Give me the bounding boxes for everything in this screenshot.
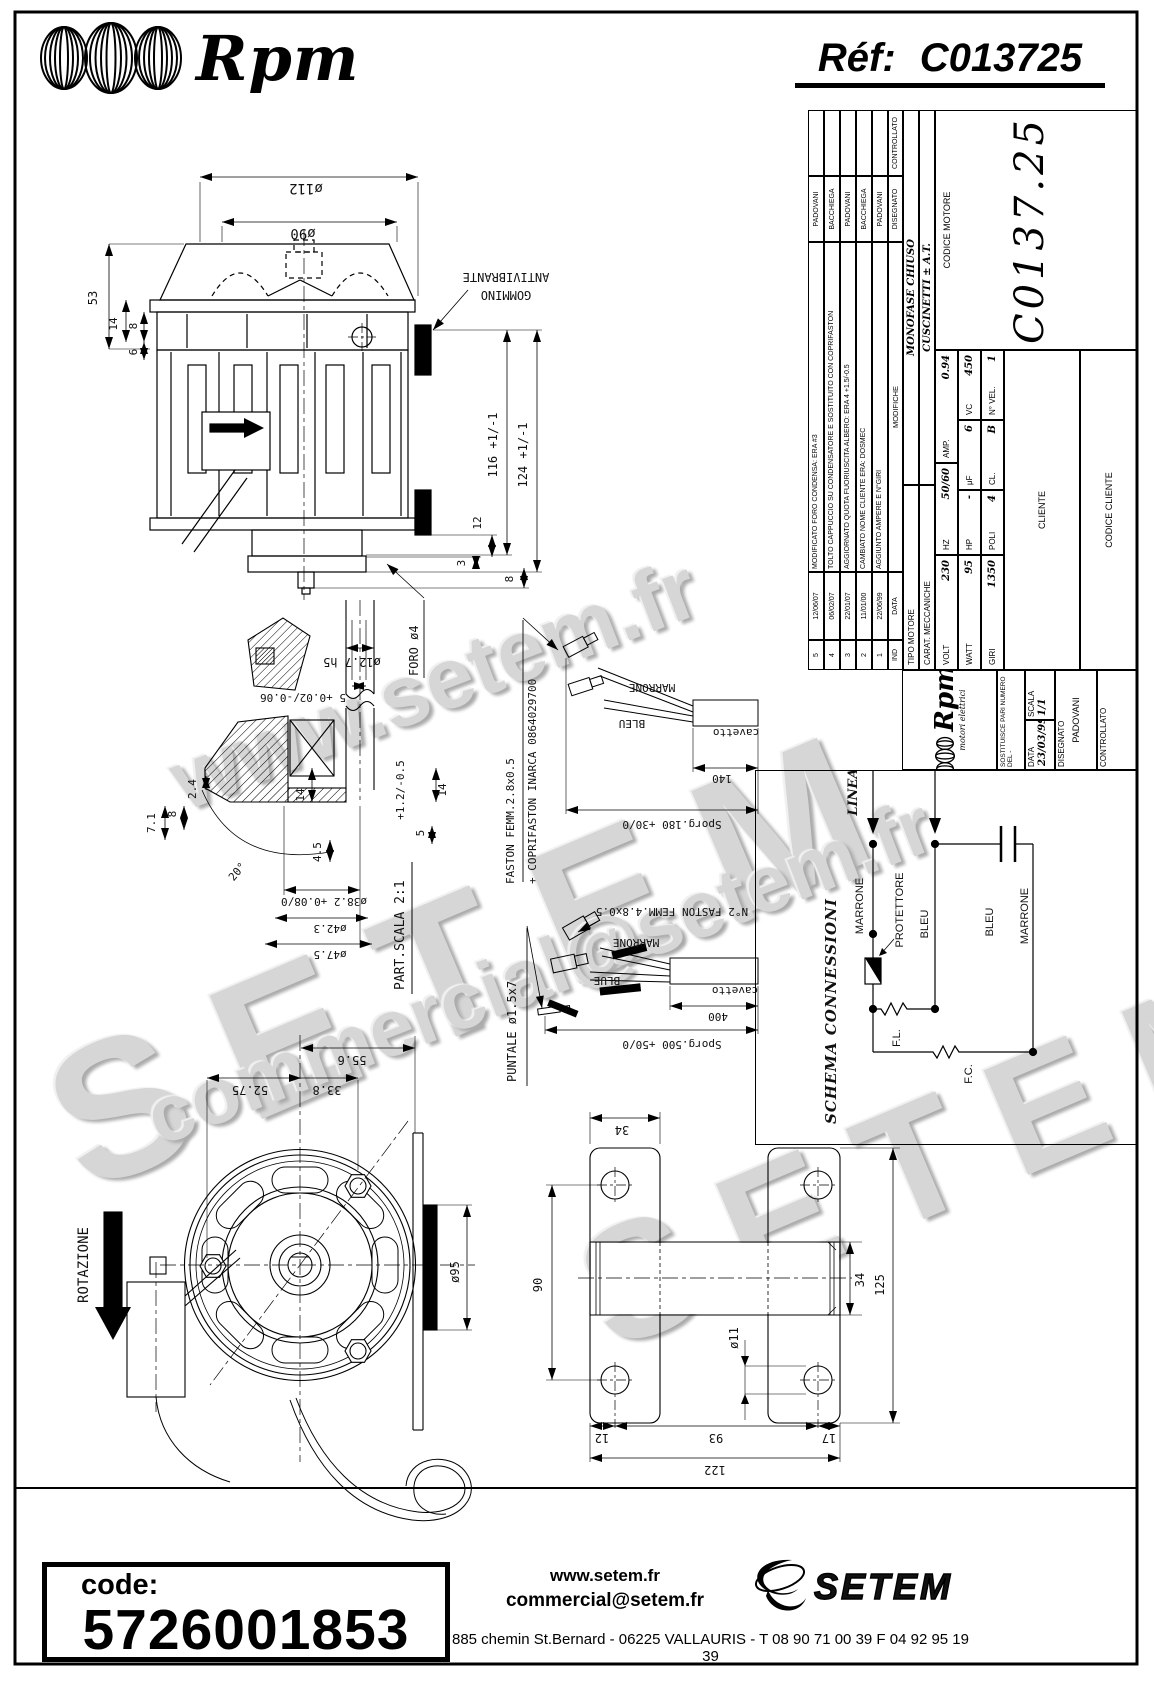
svg-text:F.L.: F.L. (891, 1029, 903, 1047)
wiring-schematic: SCHEMA CONNESSIONI LINEA (756, 771, 1136, 1144)
rev-row4-date: 06/02/07 (824, 572, 840, 640)
rpm-wordmark: Rpm (196, 22, 359, 95)
rev-row5-ind: 5 (808, 640, 824, 670)
rev-row4-check (824, 110, 840, 176)
volt-cell: VOLT230 (935, 555, 958, 670)
rev-row1-check (872, 110, 888, 176)
svg-text:4.5: 4.5 (311, 842, 324, 862)
svg-text:GOMMINO: GOMMINO (481, 288, 532, 302)
svg-text:cavetto: cavetto (713, 726, 759, 739)
svg-text:cavetto: cavetto (712, 984, 758, 997)
svg-text:Sporg.500 +50/0: Sporg.500 +50/0 (622, 1038, 721, 1051)
svg-text:7.1: 7.1 (145, 813, 158, 833)
rev-header-author: DISEGNATO (888, 176, 903, 242)
svg-text:+ COPRIFASTON INARCA 086402970: + COPRIFASTON INARCA 0864029700 (526, 679, 539, 884)
tb-data-cell: DATA23/03/99 (1025, 720, 1055, 770)
poli-cell: POLI4 (981, 490, 1004, 555)
schema-title: SCHEMA CONNESSIONI (822, 898, 840, 1124)
svg-text:116 +1/-1: 116 +1/-1 (486, 412, 500, 477)
setem-swoosh-icon (753, 1560, 807, 1611)
uf-cell: μF6 (958, 420, 981, 490)
svg-text:2.4: 2.4 (186, 779, 199, 799)
rev-row5-check (808, 110, 824, 176)
codice-cliente-cell: CODICE CLIENTE (1080, 350, 1137, 670)
svg-text:12: 12 (595, 1431, 609, 1445)
svg-text:14: 14 (436, 783, 449, 797)
footer-address: 885 chemin St.Bernard - 06225 VALLAURIS … (448, 1631, 973, 1665)
ref-value: C013725 (920, 36, 1082, 80)
svg-text:ø95: ø95 (448, 1261, 462, 1283)
nvel-cell: N° VEL.1 (981, 350, 1004, 420)
setem-logo: SETEM (748, 1554, 968, 1623)
svg-text:14: 14 (107, 317, 120, 331)
footer-email: commercial@setem.fr (455, 1590, 755, 1612)
rpm-coils-icon (36, 20, 186, 96)
rev-row1-date: 22/06/99 (872, 572, 888, 640)
rev-row3-check (840, 110, 856, 176)
tb-controllato-cell: CONTROLLATO (1097, 670, 1137, 770)
svg-text:90: 90 (531, 1278, 545, 1292)
classe-cell: CL.B (981, 420, 1004, 490)
amp-cell: AMP.0.94 (935, 350, 958, 463)
svg-text:17: 17 (822, 1431, 836, 1445)
svg-text:124 +1/-1: 124 +1/-1 (516, 422, 530, 487)
svg-text:ø90: ø90 (290, 225, 315, 241)
codice-motore-value: C0137.25 (1007, 111, 1053, 349)
rev-row2-ind: 2 (856, 640, 872, 670)
svg-text:8: 8 (503, 576, 516, 583)
svg-text:122: 122 (704, 1463, 726, 1477)
svg-text:N°2 FASTON FEMM.4.8x0.5: N°2 FASTON FEMM.4.8x0.5 (596, 905, 748, 918)
cable-detail-2-labels: N°2 FASTON FEMM.4.8x0.5 MARRONE BLUE cav… (505, 905, 758, 1082)
rev-row1-author: PADOVANI (872, 176, 888, 242)
rev-row4-author: BACCHIEGA (824, 176, 840, 242)
vc-cell: VC450 (958, 350, 981, 420)
rev-row5-desc: MODIFICATO FORO CONDENSA: ERA #3 (808, 242, 824, 572)
tb-rpm-subtitle: motori elettrici (958, 689, 967, 750)
tb-coils-icon (934, 736, 956, 770)
svg-text:14: 14 (294, 788, 307, 802)
rev-row3-author: PADOVANI (840, 176, 856, 242)
svg-text:ø38.2 +0.08/0: ø38.2 +0.08/0 (281, 895, 367, 908)
cliente-cell: CLIENTE (1004, 350, 1080, 670)
svg-text:PROTETTORE: PROTETTORE (894, 873, 906, 948)
tipo-motore-value-cell: MONOFASE CHIUSO (903, 110, 919, 485)
motor-side-view (150, 230, 468, 600)
schema-wires (865, 771, 1037, 1058)
rev-header-check: CONTROLLATO (888, 110, 903, 176)
rpm-logo: Rpm (36, 20, 359, 96)
svg-text:Sporg.180 +30/0: Sporg.180 +30/0 (622, 818, 721, 831)
rev-header-date: DATA (888, 572, 903, 640)
svg-text:140: 140 (712, 772, 732, 785)
svg-text:55.6: 55.6 (338, 1053, 367, 1067)
svg-text:MARRONE: MARRONE (854, 878, 866, 934)
svg-text:93: 93 (709, 1431, 723, 1445)
svg-text:ø11: ø11 (727, 1327, 741, 1349)
svg-text:FASTON FEMM.2.8x0.5: FASTON FEMM.2.8x0.5 (504, 758, 517, 884)
linea-label: LINEA (846, 771, 861, 817)
svg-text:BLUE: BLUE (594, 974, 621, 987)
section-detail-labels: ø12.7 h5 5 +0.02/-0.06 2.4 7.1 8 14 4.5 … (145, 655, 449, 990)
svg-text:PART.SCALA 2:1: PART.SCALA 2:1 (393, 880, 408, 990)
schema-connessioni-box: SCHEMA CONNESSIONI LINEA (755, 770, 1137, 1145)
tipo-motore-label-cell: TIPO MOTORE (903, 485, 919, 670)
svg-text:8: 8 (166, 811, 179, 818)
rev-header-ind: IND (888, 640, 903, 670)
svg-text:3: 3 (455, 560, 468, 567)
svg-text:MARRONE: MARRONE (613, 936, 659, 949)
watt-cell: WATT95 (958, 555, 981, 670)
tb-sostituisce-cell: SOSTITUISCE PARI NUMERO DEL - (997, 670, 1025, 770)
carat-meccaniche-value-cell: CUSCINETTI ± A.T. (919, 110, 935, 485)
carat-meccaniche-label-cell: CARAT. MECCANICHE (919, 485, 935, 670)
svg-text:ø47.5: ø47.5 (313, 948, 346, 961)
code-value: 5726001853 (47, 1597, 445, 1663)
svg-text:MARRONE: MARRONE (629, 681, 675, 694)
svg-text:8: 8 (127, 323, 140, 330)
rev-row1-ind: 1 (872, 640, 888, 670)
hz-cell: HZ50/60 (935, 463, 958, 555)
motor-front-view (95, 1035, 475, 1521)
title-block: SCHEMA CONNESSIONI LINEA (755, 110, 1137, 1145)
rev-row5-author: PADOVANI (808, 176, 824, 242)
svg-text:33.8: 33.8 (313, 1083, 342, 1097)
svg-text:53: 53 (86, 291, 100, 305)
rev-row4-desc: TOLTO CAPPUCCIO SU CONDENSATORE E SOSTIT… (824, 242, 840, 572)
svg-text:+1.2/-0.5: +1.2/-0.5 (394, 760, 407, 820)
tb-disegnato-cell: DISEGNATOPADOVANI (1055, 670, 1097, 770)
side-view-labels: ø112 ø90 53 14 8 6 116 +1/-1 124 +1/-1 1… (86, 180, 549, 676)
rev-row4-ind: 4 (824, 640, 840, 670)
rev-row2-check (856, 110, 872, 176)
bracket-view (578, 1148, 852, 1428)
hp-cell: HP- (958, 490, 981, 555)
rev-row2-author: BACCHIEGA (856, 176, 872, 242)
svg-text:F.C.: F.C. (963, 1064, 975, 1084)
svg-text:ANTIVIBRANTE: ANTIVIBRANTE (463, 270, 550, 284)
svg-text:FORO ø4: FORO ø4 (407, 625, 421, 676)
rev-row5-date: 12/06/07 (808, 572, 824, 640)
rev-header-desc: MODIFICHE (888, 242, 903, 572)
setem-wordmark: SETEM (814, 1566, 953, 1607)
svg-text:5: 5 (414, 830, 427, 837)
svg-text:6: 6 (127, 349, 140, 356)
svg-text:ø112: ø112 (289, 180, 323, 196)
drawing-sheet: www.setem.fr SETEM commercial@setem.fr S… (0, 0, 1154, 1683)
cable-detail-1 (523, 618, 758, 882)
tb-logo-cell: Rpm motori elettrici (902, 670, 997, 770)
svg-text:MARRONE: MARRONE (1019, 888, 1031, 944)
svg-text:34: 34 (615, 1123, 629, 1137)
svg-text:125: 125 (873, 1274, 887, 1296)
rev-row3-desc: AGGIORNATO QUOTA FUORIUSCITA ALBERO: ERA… (840, 242, 856, 572)
rev-row1-desc: AGGIUNTO AMPERE E N°GIRI (872, 242, 888, 572)
svg-text:BLEU: BLEU (984, 908, 996, 937)
svg-text:12: 12 (471, 516, 484, 529)
svg-text:52.75: 52.75 (232, 1083, 268, 1097)
svg-text:PUNTALE ø1.5x7: PUNTALE ø1.5x7 (505, 981, 519, 1082)
svg-text:ø42.3: ø42.3 (313, 922, 346, 935)
code-box: code: 5726001853 (42, 1562, 450, 1662)
rev-row3-date: 22/01/07 (840, 572, 856, 640)
rev-row2-date: 11/01/00 (856, 572, 872, 640)
reference-number: Réf:C013725 (795, 36, 1105, 88)
svg-text:ø12.7 h5: ø12.7 h5 (323, 655, 381, 669)
footer-website: www.setem.fr (455, 1566, 755, 1586)
svg-text:BLEU: BLEU (919, 910, 931, 939)
svg-text:BLEU: BLEU (619, 717, 646, 730)
svg-text:5 +0.02/-0.06: 5 +0.02/-0.06 (260, 691, 346, 704)
rev-row3-ind: 3 (840, 640, 856, 670)
ref-label: Réf: (818, 36, 896, 80)
section-detail (202, 600, 374, 855)
tb-scala-cell: SCALA1/1 (1025, 670, 1055, 720)
svg-text:20°: 20° (226, 860, 249, 884)
giri-cell: GIRI1350 (981, 555, 1004, 670)
rev-row2-desc: CAMBIATO NOME CLIENTE ERA: DOSMEC (856, 242, 872, 572)
codice-motore-cell: CODICE MOTORE C0137.25 (935, 110, 1137, 350)
svg-text:ROTAZIONE: ROTAZIONE (76, 1227, 92, 1303)
tb-rpm-wordmark: Rpm (932, 670, 958, 732)
svg-text:400: 400 (708, 1010, 728, 1023)
cable-detail-1-labels: FASTON FEMM.2.8x0.5 + COPRIFASTON INARCA… (504, 679, 759, 884)
svg-text:34: 34 (853, 1273, 867, 1287)
